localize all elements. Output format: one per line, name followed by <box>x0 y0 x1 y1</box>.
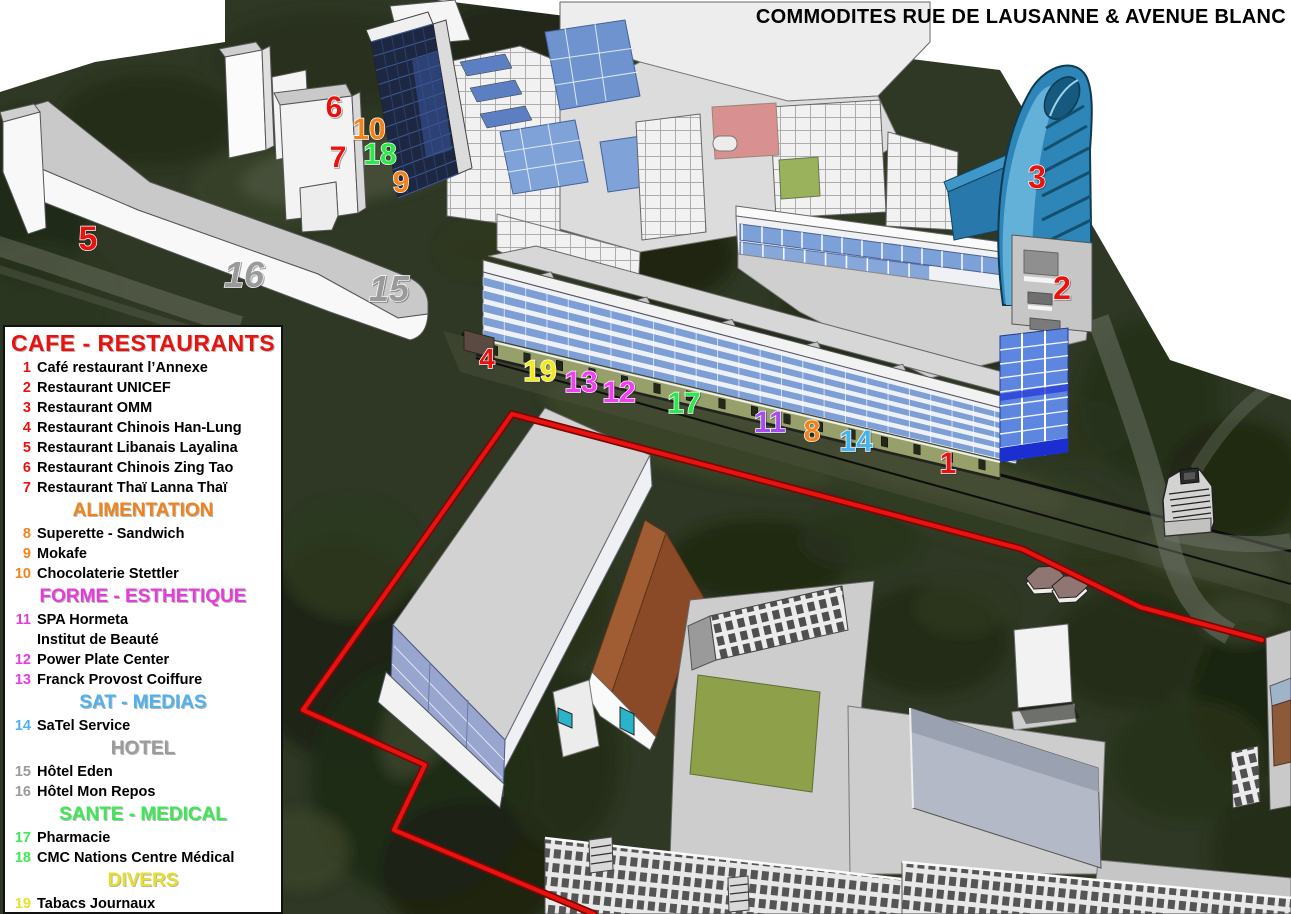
white-box-building <box>1014 624 1072 708</box>
shop-door <box>719 398 726 409</box>
office-complex-center-tower <box>636 114 706 240</box>
legend-item-number: 6 <box>5 458 31 478</box>
legend-item-label: Power Plate Center <box>37 650 169 670</box>
legend-item-15: 15Hôtel Eden <box>5 762 281 782</box>
legend-item-label: Hôtel Eden <box>37 762 113 782</box>
legend-item-number: 1 <box>5 358 31 378</box>
legend-item-label: Hôtel Mon Repos <box>37 782 155 802</box>
legend-heading-0: CAFE - RESTAURANTS <box>5 328 281 358</box>
legend-item-number: 15 <box>5 762 31 782</box>
shop-door <box>556 360 563 371</box>
map-marker-2: 2 <box>1053 270 1071 306</box>
map-marker-16: 16 <box>224 254 265 295</box>
legend-item-5: 5Restaurant Libanais Layalina <box>5 438 281 458</box>
legend-panel: CAFE - RESTAURANTS1Café restaurant l’Ann… <box>3 325 283 914</box>
legend-item-6: 6Restaurant Chinois Zing Tao <box>5 458 281 478</box>
map-marker-6: 6 <box>326 91 343 124</box>
legend-item-label: SaTel Service <box>37 716 130 736</box>
legend-item-label: CMC Nations Centre Médical <box>37 848 234 868</box>
map-marker-8: 8 <box>804 415 821 448</box>
map-marker-4: 4 <box>479 343 495 374</box>
shop-door <box>914 444 921 455</box>
legend-item-number: 4 <box>5 418 31 438</box>
map-marker-1: 1 <box>940 447 957 480</box>
shop-door <box>881 436 888 447</box>
legend-item-11: 11SPA Hormeta <box>5 610 281 630</box>
edge-building-brown <box>1272 700 1291 766</box>
legend-item-18: 18CMC Nations Centre Médical <box>5 848 281 868</box>
legend-item-17: 17Pharmacie <box>5 828 281 848</box>
legend-item-9: 9Mokafe <box>5 544 281 564</box>
legend-item-label: Franck Provost Coiffure <box>37 670 202 690</box>
map-marker-14: 14 <box>839 425 873 458</box>
legend-heading-2: FORME - ESTHETIQUE <box>5 584 281 610</box>
legend-item-number: 3 <box>5 398 31 418</box>
map-marker-5: 5 <box>79 220 98 258</box>
legend-heading-6: DIVERS <box>5 868 281 894</box>
legend-item-number: 18 <box>5 848 31 868</box>
legend-item-number: 2 <box>5 378 31 398</box>
barrel-vault-structure <box>713 136 737 151</box>
glass-roof-wedge <box>545 20 640 110</box>
street-kiosk <box>1163 468 1214 536</box>
edge-facade-grid <box>1231 746 1260 808</box>
legend-item-label: Restaurant Chinois Zing Tao <box>37 458 233 478</box>
unicef-building <box>1012 235 1092 332</box>
building-67-annex <box>300 182 338 232</box>
legend-item-number: 5 <box>5 438 31 458</box>
map-title: COMMODITES RUE DE LAUSANNE & AVENUE BLAN… <box>600 6 1290 29</box>
legend-item-11-sub: Institut de Beauté <box>5 630 281 650</box>
legend-item-number: 10 <box>5 564 31 584</box>
legend-item-label: Chocolaterie Stettler <box>37 564 179 584</box>
legend-item-2: 2Restaurant UNICEF <box>5 378 281 398</box>
legend-item-12: 12Power Plate Center <box>5 650 281 670</box>
legend-item-label: Restaurant Libanais Layalina <box>37 438 238 458</box>
legend-item-19: 19Tabacs Journaux <box>5 894 281 914</box>
legend-item-label: Café restaurant l’Annexe <box>37 358 208 378</box>
legend-item-3: 3Restaurant OMM <box>5 398 281 418</box>
legend-item-label: Mokafe <box>37 544 87 564</box>
legend-item-label: Restaurant OMM <box>37 398 152 418</box>
legend-item-7: 7Restaurant Thaï Lanna Thaï <box>5 478 281 498</box>
map-marker-11: 11 <box>754 406 786 439</box>
legend-item-number: 8 <box>5 524 31 544</box>
tower-a-front <box>225 50 266 158</box>
legend-item-10: 10Chocolaterie Stettler <box>5 564 281 584</box>
legend-heading-1: ALIMENTATION <box>5 498 281 524</box>
legend-heading-3: SAT - MEDIAS <box>5 690 281 716</box>
legend-item-label: Tabacs Journaux <box>37 894 155 914</box>
legend-item-number: 11 <box>5 610 31 630</box>
legend-item-number: 14 <box>5 716 31 736</box>
legend-item-label: SPA Hormeta <box>37 610 128 630</box>
legend-item-number: 17 <box>5 828 31 848</box>
legend-item-label: Pharmacie <box>37 828 110 848</box>
map-page: 61071895161532419131217118141 COMMODITES… <box>0 0 1291 914</box>
shop-door <box>654 383 661 394</box>
legend-item-number: 12 <box>5 650 31 670</box>
legend-item-label: Superette - Sandwich <box>37 524 184 544</box>
legend-item-14: 14SaTel Service <box>5 716 281 736</box>
map-marker-17: 17 <box>667 387 700 420</box>
green-courtyard <box>690 675 820 792</box>
map-marker-19: 19 <box>523 355 556 388</box>
legend-item-8: 8Superette - Sandwich <box>5 524 281 544</box>
legend-item-label: Restaurant Chinois Han-Lung <box>37 418 242 438</box>
legend-heading-4: HOTEL <box>5 736 281 762</box>
legend-body: CAFE - RESTAURANTS1Café restaurant l’Ann… <box>5 328 281 914</box>
legend-heading-5: SANTE - MEDICAL <box>5 802 281 828</box>
map-marker-9: 9 <box>393 166 410 199</box>
shop-door <box>979 459 986 470</box>
legend-item-number: 13 <box>5 670 31 690</box>
legend-item-number: 16 <box>5 782 31 802</box>
legend-item-4: 4Restaurant Chinois Han-Lung <box>5 418 281 438</box>
legend-item-16: 16Hôtel Mon Repos <box>5 782 281 802</box>
map-marker-13: 13 <box>564 366 597 399</box>
map-marker-3: 3 <box>1028 159 1046 195</box>
map-marker-7: 7 <box>330 141 347 174</box>
map-marker-15: 15 <box>369 268 410 309</box>
green-roof <box>779 157 820 199</box>
legend-item-label: Restaurant Thaï Lanna Thaï <box>37 478 227 498</box>
map-marker-12: 12 <box>602 376 635 409</box>
legend-item-1: 1Café restaurant l’Annexe <box>5 358 281 378</box>
glass-roof-wedge <box>500 120 588 194</box>
legend-item-number: 7 <box>5 478 31 498</box>
legend-item-number: 19 <box>5 894 31 914</box>
legend-item-number: 9 <box>5 544 31 564</box>
legend-item-13: 13Franck Provost Coiffure <box>5 670 281 690</box>
kiosk-skylight-inner <box>1184 472 1195 480</box>
legend-item-label: Restaurant UNICEF <box>37 378 171 398</box>
window-opening <box>1028 292 1052 305</box>
